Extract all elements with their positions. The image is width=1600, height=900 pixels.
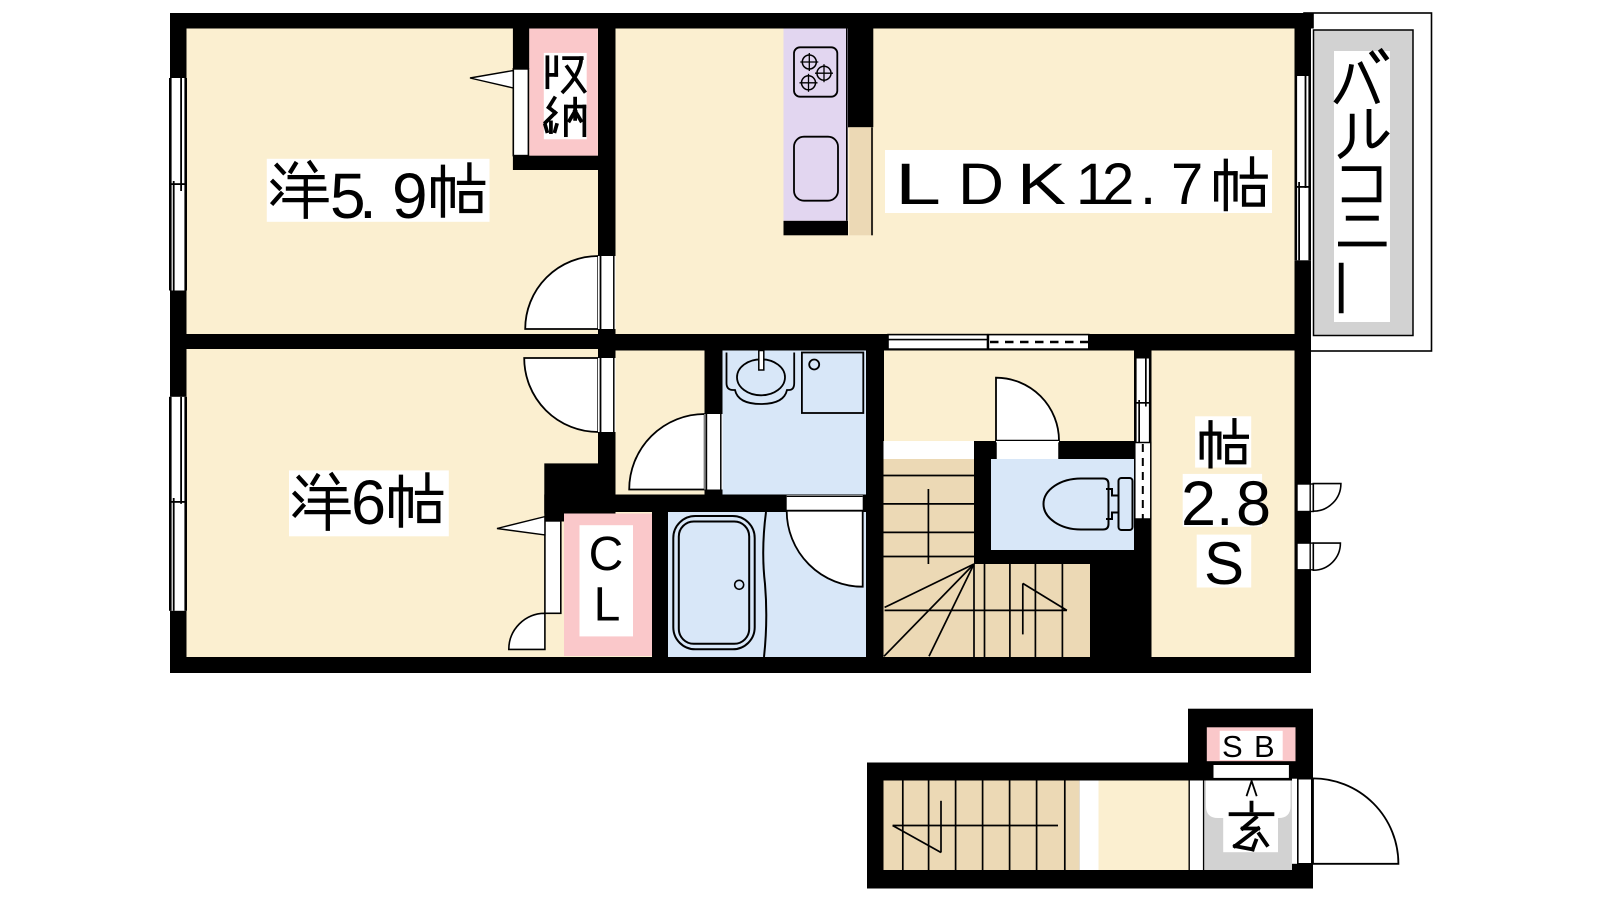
svg-text:L: L xyxy=(594,579,621,632)
svg-text:S: S xyxy=(1204,530,1244,597)
svg-text:9: 9 xyxy=(392,160,428,232)
svg-text:S: S xyxy=(1222,729,1243,764)
svg-text:D: D xyxy=(958,152,1004,217)
svg-text:2: 2 xyxy=(1102,152,1134,217)
svg-text:L: L xyxy=(895,152,941,217)
svg-text:2: 2 xyxy=(1181,469,1216,539)
svg-text:K: K xyxy=(1017,152,1066,217)
svg-text:.: . xyxy=(1216,469,1234,539)
svg-text:.: . xyxy=(359,160,377,232)
svg-text:7: 7 xyxy=(1171,152,1203,217)
svg-text:B: B xyxy=(1254,729,1275,764)
svg-text:6: 6 xyxy=(351,468,386,538)
svg-text:C: C xyxy=(589,528,624,581)
svg-text:.: . xyxy=(1140,152,1156,217)
svg-text:8: 8 xyxy=(1236,469,1271,539)
